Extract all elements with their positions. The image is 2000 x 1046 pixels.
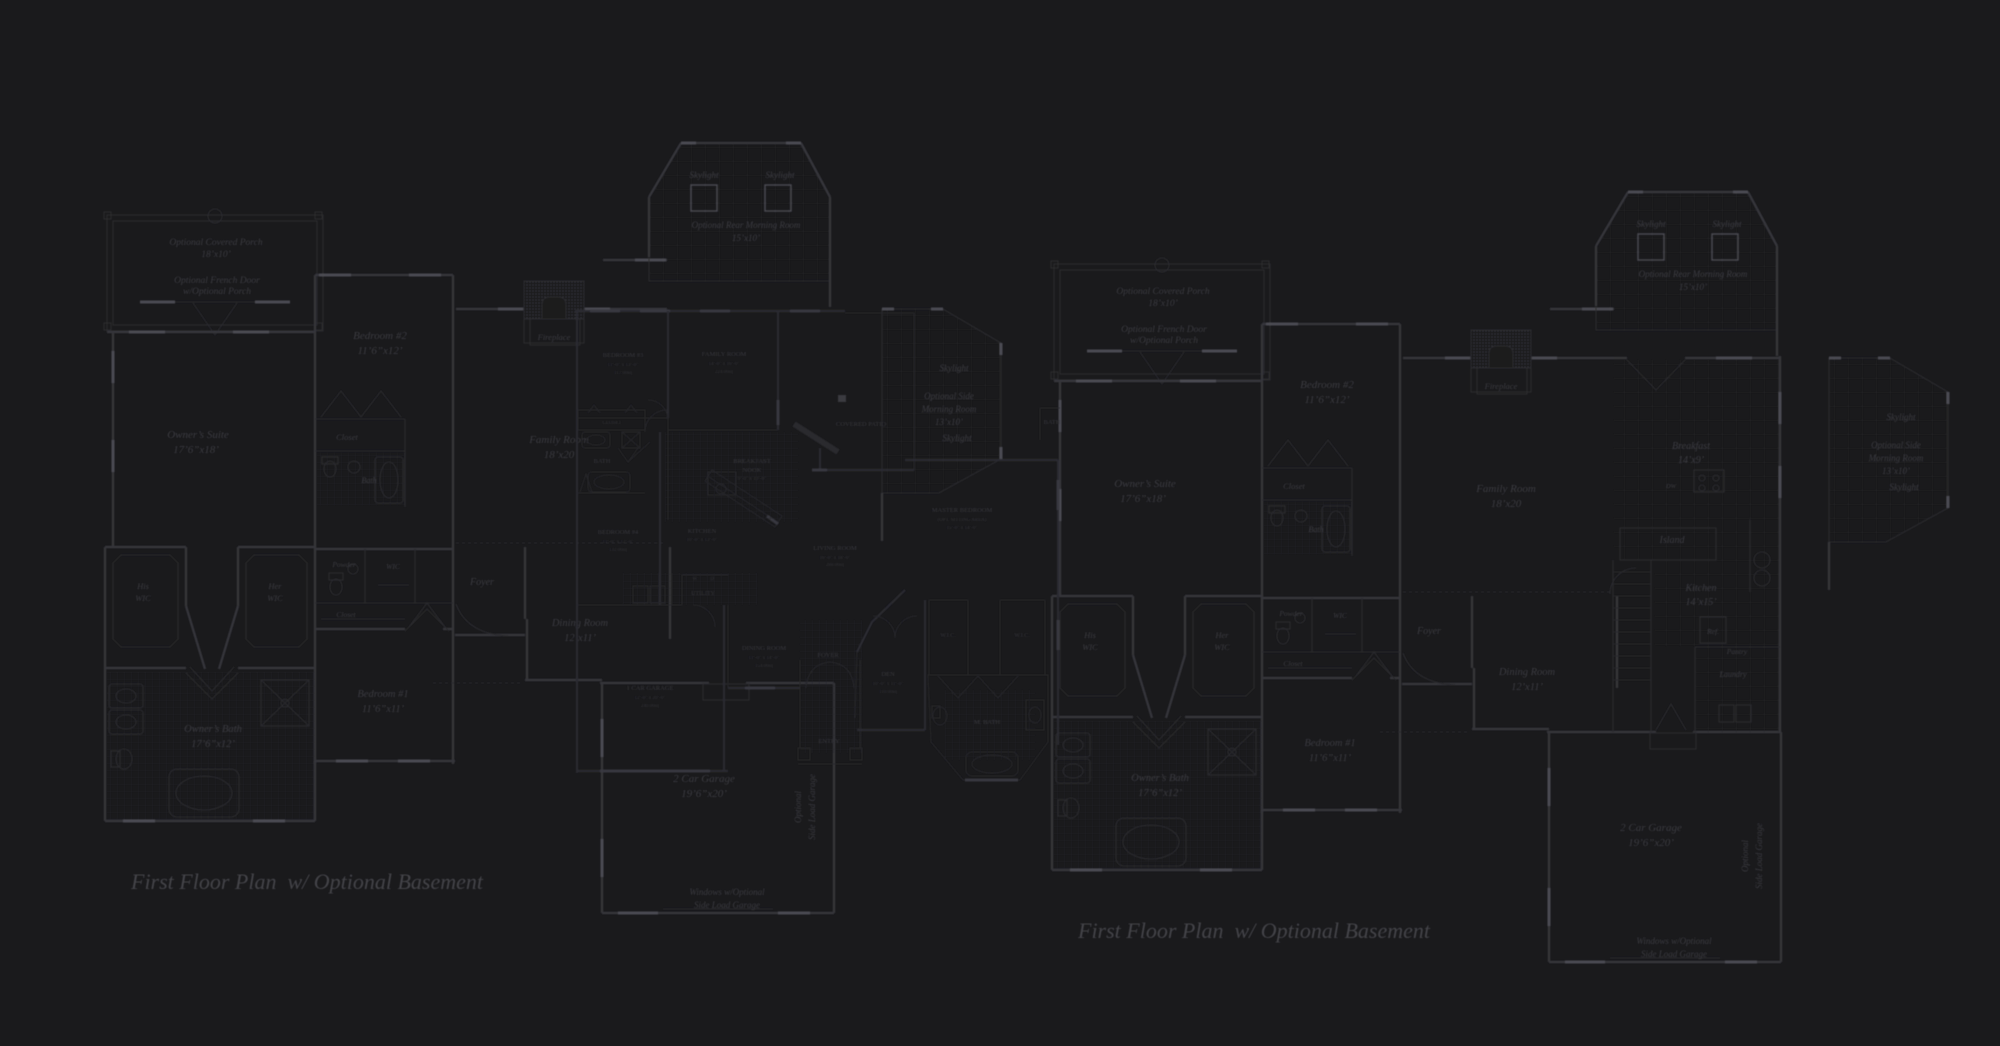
svg-text:BATH: BATH [594,458,611,465]
svg-text:154.00sq: 154.00sq [755,664,774,669]
svg-text:DEN: DEN [881,671,895,678]
svg-text:BEDROOM #4: BEDROOM #4 [598,529,639,536]
svg-text:288.00sq: 288.00sq [826,563,845,568]
svg-text:10’-0” x 11’-0”: 10’-0” x 11’-0” [873,682,904,687]
svg-text:117.00sq: 117.00sq [614,371,633,376]
svg-text:BEDROOM #3: BEDROOM #3 [603,352,644,359]
svg-text:CLOSET: CLOSET [603,421,622,426]
svg-text:FAMILY ROOM: FAMILY ROOM [702,351,747,358]
svg-text:10’-0” x 13’-0”: 10’-0” x 13’-0” [686,538,717,543]
svg-text:12’-0” x 20’-0”: 12’-0” x 20’-0” [634,696,665,701]
svg-text:224.00sq: 224.00sq [715,370,734,375]
svg-text:BATH: BATH [1044,419,1061,426]
svg-text:11’-0” x 12’-0”: 11’-0” x 12’-0” [603,540,634,545]
svg-text:14’-0” x 16’-0”: 14’-0” x 16’-0” [708,362,739,367]
svg-text:(OPT. SITTING AREA): (OPT. SITTING AREA) [938,518,987,523]
svg-text:FOYER: FOYER [817,652,839,659]
svg-text:1 CAR GARAGE: 1 CAR GARAGE [627,685,674,692]
svg-text:132.00sq: 132.00sq [609,548,628,553]
svg-text:UTILITY: UTILITY [691,591,715,597]
svg-text:W.I.C.: W.I.C. [1014,633,1030,639]
svg-text:16’-0” x 18’-0”: 16’-0” x 18’-0” [819,556,850,561]
svg-text:M. BATH: M. BATH [974,719,1000,726]
svg-text:KITCHEN: KITCHEN [688,528,717,535]
svg-text:11’-0” x 14’-0”: 11’-0” x 14’-0” [749,656,780,661]
svg-text:W.I.C.: W.I.C. [940,633,956,639]
svg-text:LIVING ROOM: LIVING ROOM [813,545,857,552]
svg-text:ENTRY: ENTRY [818,738,840,745]
svg-text:D: D [710,577,714,582]
svg-text:11’-0” x 13’-0”: 11’-0” x 13’-0” [608,363,639,368]
svg-text:15’-0” x 14’-0”: 15’-0” x 14’-0” [946,526,977,531]
svg-text:W: W [693,577,698,582]
svg-text:DINING ROOM: DINING ROOM [742,645,786,652]
svg-text:240.00sq: 240.00sq [641,704,660,709]
svg-text:MASTER BEDROOM: MASTER BEDROOM [932,507,993,514]
svg-text:COVERED PATIO: COVERED PATIO [836,421,886,428]
svg-text:110.00sq: 110.00sq [879,690,898,695]
